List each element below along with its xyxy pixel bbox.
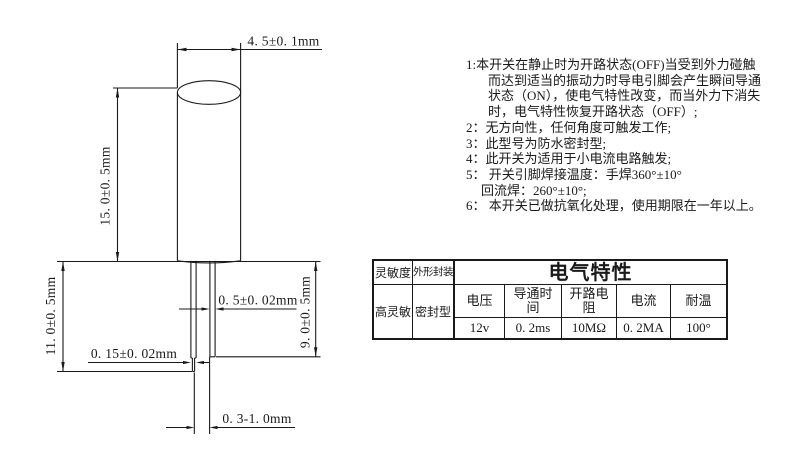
dim-pin-width-label: 0. 5±0. 02mm [218, 293, 297, 308]
package-value-cell: 密封型 [413, 285, 455, 338]
sensitivity-value-cell: 高灵敏 [374, 285, 413, 338]
spec-header-temperature: 耐温 [671, 285, 726, 318]
dim-pin-width: 0. 5±0. 02mm [179, 293, 298, 311]
spec-value-on-time: 0. 2ms [505, 318, 562, 338]
dim-body-length: 15. 0±0. 5mm [98, 88, 178, 262]
note-line: 状态（ON），使电气特性改变，而当外力下消失 [466, 88, 786, 104]
spec-table: 灵敏度 外形封装 电气特性 高灵敏 密封型 电压 导通时 间 开路电 阻 电流 … [372, 259, 728, 340]
spec-header-on-time: 导通时 间 [505, 285, 562, 318]
note-line: 回流焊：260°±10°; [466, 183, 786, 199]
note-line: 而达到适当的振动力时导电引脚会产生瞬间导通 [466, 73, 786, 89]
spec-value-temperature: 100° [671, 318, 726, 338]
dim-pin-gap-label: 0. 3-1. 0mm [222, 411, 291, 426]
dim-tip-width-label: 0. 15±0. 02mm [91, 346, 178, 361]
note-line: 5： 开关引脚焊接温度：手焊360°±10° [466, 167, 786, 183]
datasheet-page: 4. 5±0. 1mm 15. 0±0. 5mm 11. 0±0. 5mm 9 [0, 0, 800, 462]
spec-header-voltage: 电压 [455, 285, 505, 318]
table-title: 电气特性 [455, 261, 726, 285]
cylinder-body [177, 43, 240, 263]
dim-diameter: 4. 5±0. 1mm [177, 34, 322, 89]
note-line: 2：无方向性，任何角度可触发工作; [466, 120, 786, 136]
dim-diameter-label: 4. 5±0. 1mm [247, 34, 319, 49]
spec-header-open-resistance: 开路电 阻 [562, 285, 617, 318]
dim-left-pin-label: 11. 0±0. 5mm [43, 276, 58, 355]
switch-technical-drawing: 4. 5±0. 1mm 15. 0±0. 5mm 11. 0±0. 5mm 9 [0, 0, 360, 462]
right-pin [210, 261, 215, 357]
dim-right-pin-label: 9. 0±0. 5mm [298, 276, 313, 348]
notes-section: 1:本开关在静止时为开路状态(OFF)当受到外力碰触 而达到适当的振动力时导电引… [466, 57, 786, 214]
note-line: 1:本开关在静止时为开路状态(OFF)当受到外力碰触 [466, 57, 786, 73]
sensitivity-header-cell: 灵敏度 [374, 261, 413, 285]
dim-body-length-label: 15. 0±0. 5mm [98, 146, 113, 225]
spec-header-current: 电流 [617, 285, 671, 318]
package-header-cell: 外形封装 [413, 261, 455, 285]
spec-value-current: 0. 2MA [617, 318, 671, 338]
note-line: 4：此开关为适用于小电流电路触发; [466, 151, 786, 167]
spec-value-voltage: 12v [455, 318, 505, 338]
left-pin [191, 261, 196, 372]
note-line: 时，电气特性恢复开路状态（OFF）; [466, 104, 786, 120]
note-line: 6： 本开关已做抗氧化处理，使用期限在一年以上。 [466, 198, 786, 214]
note-line: 3：此型号为防水密封型; [466, 136, 786, 152]
pin-gap-extension-lines [194, 357, 209, 434]
dim-pin-gap: 0. 3-1. 0mm [166, 411, 295, 429]
spec-value-open-resistance: 10MΩ [562, 318, 617, 338]
